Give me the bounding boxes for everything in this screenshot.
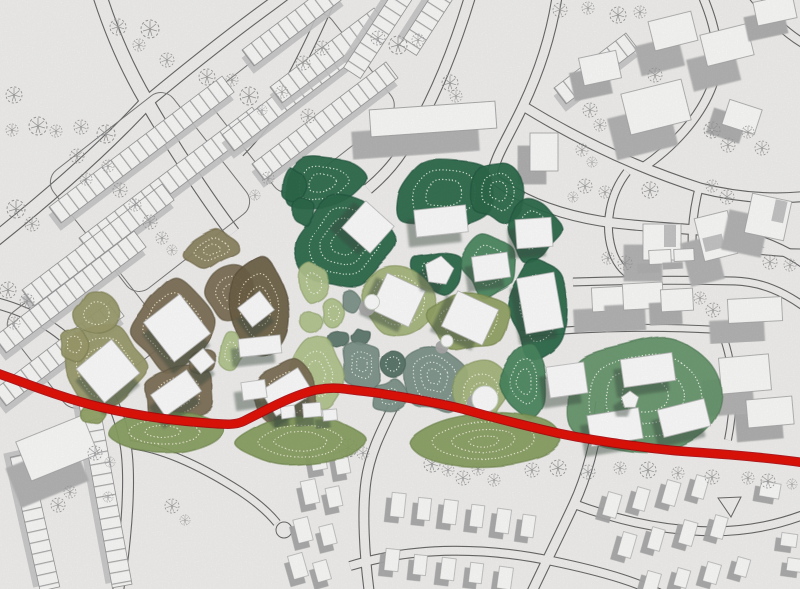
masterplan-site-map: [0, 0, 800, 589]
paper-grain-texture: [0, 0, 800, 589]
site-plan-stage: [0, 0, 800, 589]
